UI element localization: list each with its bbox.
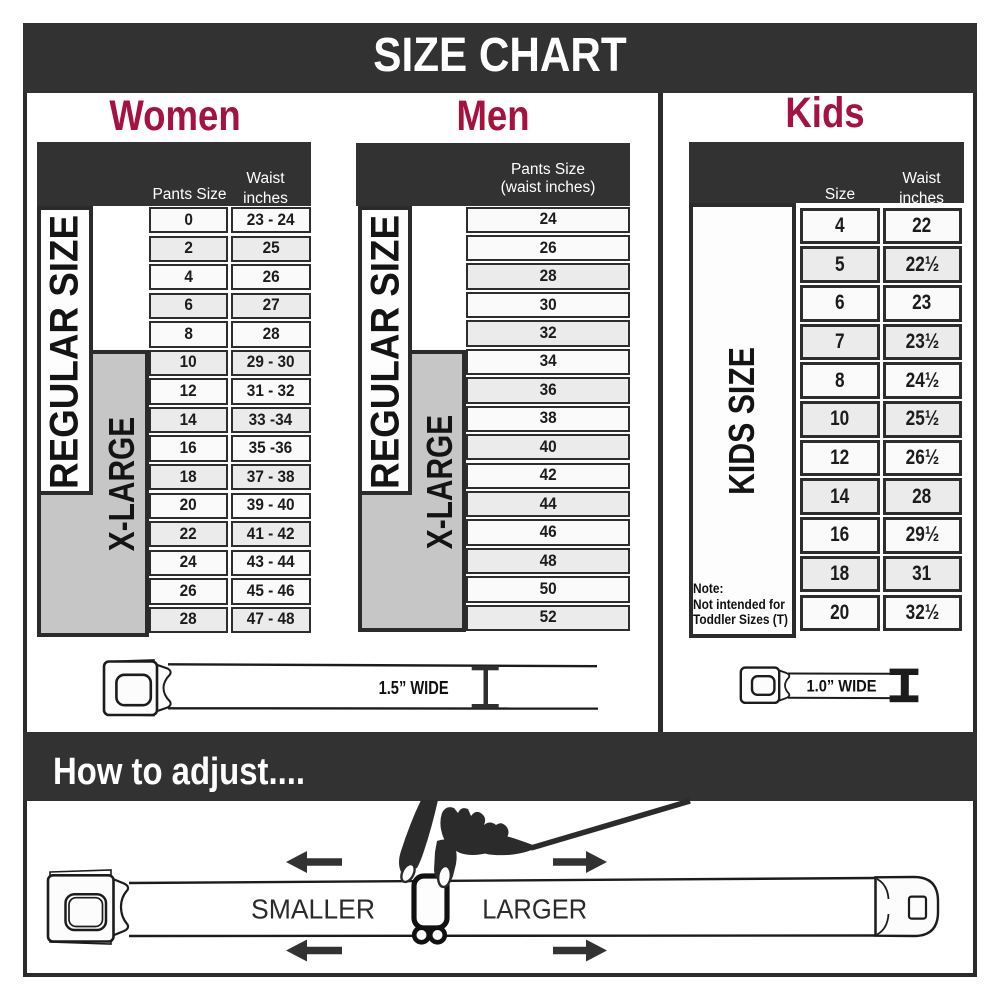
svg-text:LARGER: LARGER <box>482 894 587 925</box>
svg-text:1.0” WIDE: 1.0” WIDE <box>807 678 877 696</box>
svg-text:SMALLER: SMALLER <box>251 894 375 925</box>
svg-text:1.5” WIDE: 1.5” WIDE <box>379 677 449 698</box>
